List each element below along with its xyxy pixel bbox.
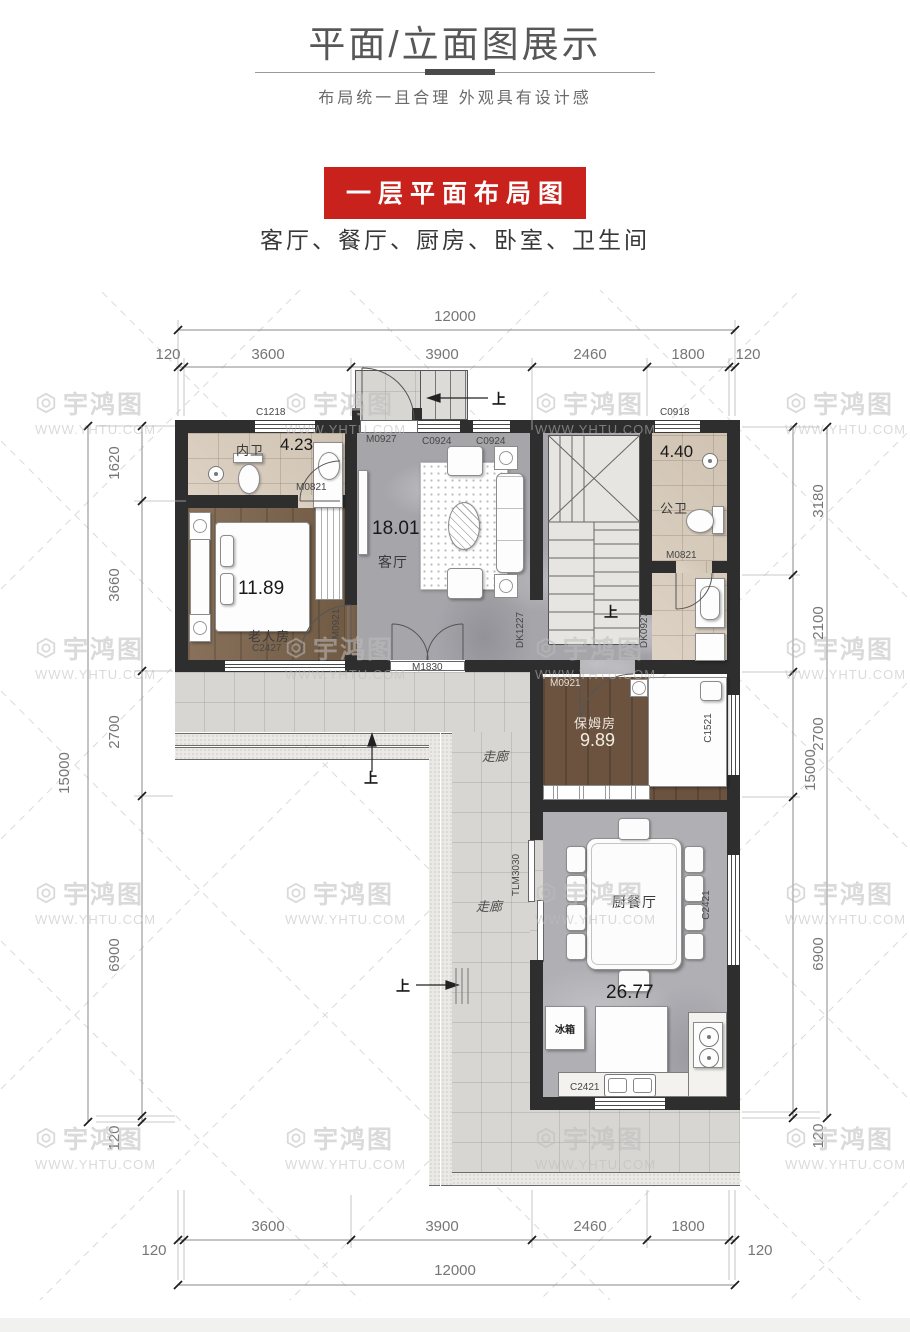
label-c1218: C1218 — [256, 407, 285, 418]
page-title: 平面/立面图展示 — [0, 14, 910, 68]
label-kitchen-name: 厨餐厅 — [612, 892, 657, 912]
label-c2427: C2427 — [252, 643, 281, 654]
dim-right-120: 120 — [810, 1106, 826, 1166]
label-corridor-a: 走廊 — [482, 746, 508, 765]
title-divider-accent — [425, 69, 495, 75]
label-c2421-right: C2421 — [700, 875, 712, 935]
label-bath2-area: 4.40 — [660, 442, 693, 462]
label-m0821-bath1: M0821 — [296, 482, 327, 493]
dim-bottom-120r: 120 — [738, 1242, 782, 1259]
dim-bottom-3600: 3600 — [238, 1218, 298, 1235]
dim-top-120r: 120 — [720, 346, 776, 363]
label-m1830: M1830 — [412, 662, 443, 673]
label-m0821-bath2: M0821 — [666, 550, 697, 561]
page: 平面/立面图展示 布局统一且合理 外观具有设计感 一层平面布局图 客厅、餐厅、厨… — [0, 0, 910, 1332]
section-banner: 一层平面布局图 — [324, 167, 586, 219]
label-c0924-b: C0924 — [476, 436, 505, 447]
dim-left-120: 120 — [106, 1108, 122, 1168]
label-bath1-name: 内卫 — [236, 440, 264, 459]
label-m0921-nanny: M0921 — [550, 678, 581, 689]
label-up-porch: 上 — [492, 389, 506, 409]
label-c2421-bottom: C2421 — [570, 1082, 599, 1093]
dim-top-3600: 3600 — [238, 346, 298, 363]
footer-band — [0, 1318, 910, 1332]
dim-bottom-total: 12000 — [390, 1262, 520, 1279]
dim-bottom-2460: 2460 — [560, 1218, 620, 1235]
dim-top-3900: 3900 — [412, 346, 472, 363]
label-up-stairs: 上 — [604, 602, 618, 622]
dim-left-6900: 6900 — [106, 925, 122, 985]
label-up-courtyard: 上 — [396, 976, 410, 996]
label-dk0927: DK0927 — [638, 600, 650, 660]
label-c1521: C1521 — [702, 698, 714, 758]
label-living-area: 18.01 — [372, 518, 420, 540]
plan-labels: C1218 内卫 4.23 M0821 M0927 C0924 C0924 C0… — [0, 290, 910, 1300]
dim-right-3180: 3180 — [810, 471, 826, 531]
label-corridor-b: 走廊 — [476, 896, 502, 915]
label-c0924-a: C0924 — [422, 436, 451, 447]
label-living-name: 客厅 — [378, 552, 408, 572]
floor-plan: 冰箱 — [0, 290, 910, 1300]
dim-top-total: 12000 — [390, 308, 520, 325]
label-tlm3030: TLM3030 — [510, 845, 522, 905]
label-up-walkway: 上 — [364, 768, 378, 788]
label-nanny-area: 9.89 — [580, 730, 615, 751]
label-bath2-name: 公卫 — [660, 498, 688, 517]
dim-right-total: 15000 — [802, 740, 818, 800]
label-kitchen-area: 26.77 — [606, 982, 654, 1004]
dim-bottom-120l: 120 — [132, 1242, 176, 1259]
label-bath1-area: 4.23 — [280, 435, 313, 455]
dim-top-120l: 120 — [140, 346, 196, 363]
label-m0927: M0927 — [366, 434, 397, 445]
label-bedroom-area: 11.89 — [238, 578, 284, 600]
room-summary: 客厅、餐厅、厨房、卧室、卫生间 — [0, 221, 910, 255]
label-dk1227: DK1227 — [514, 600, 526, 660]
dim-left-1620: 1620 — [106, 433, 122, 493]
dim-left-3660: 3660 — [106, 555, 122, 615]
dim-left-2700: 2700 — [106, 702, 122, 762]
dim-bottom-1800: 1800 — [658, 1218, 718, 1235]
dim-top-2460: 2460 — [560, 346, 620, 363]
dim-bottom-3900: 3900 — [412, 1218, 472, 1235]
dim-right-2100: 2100 — [810, 593, 826, 653]
dim-top-1800: 1800 — [658, 346, 718, 363]
label-c0918: C0918 — [660, 407, 689, 418]
dim-right-6900: 6900 — [810, 924, 826, 984]
page-subtitle: 布局统一且合理 外观具有设计感 — [0, 84, 910, 108]
label-m0921-bedroom: M0921 — [330, 594, 342, 654]
dim-left-total: 15000 — [56, 743, 72, 803]
